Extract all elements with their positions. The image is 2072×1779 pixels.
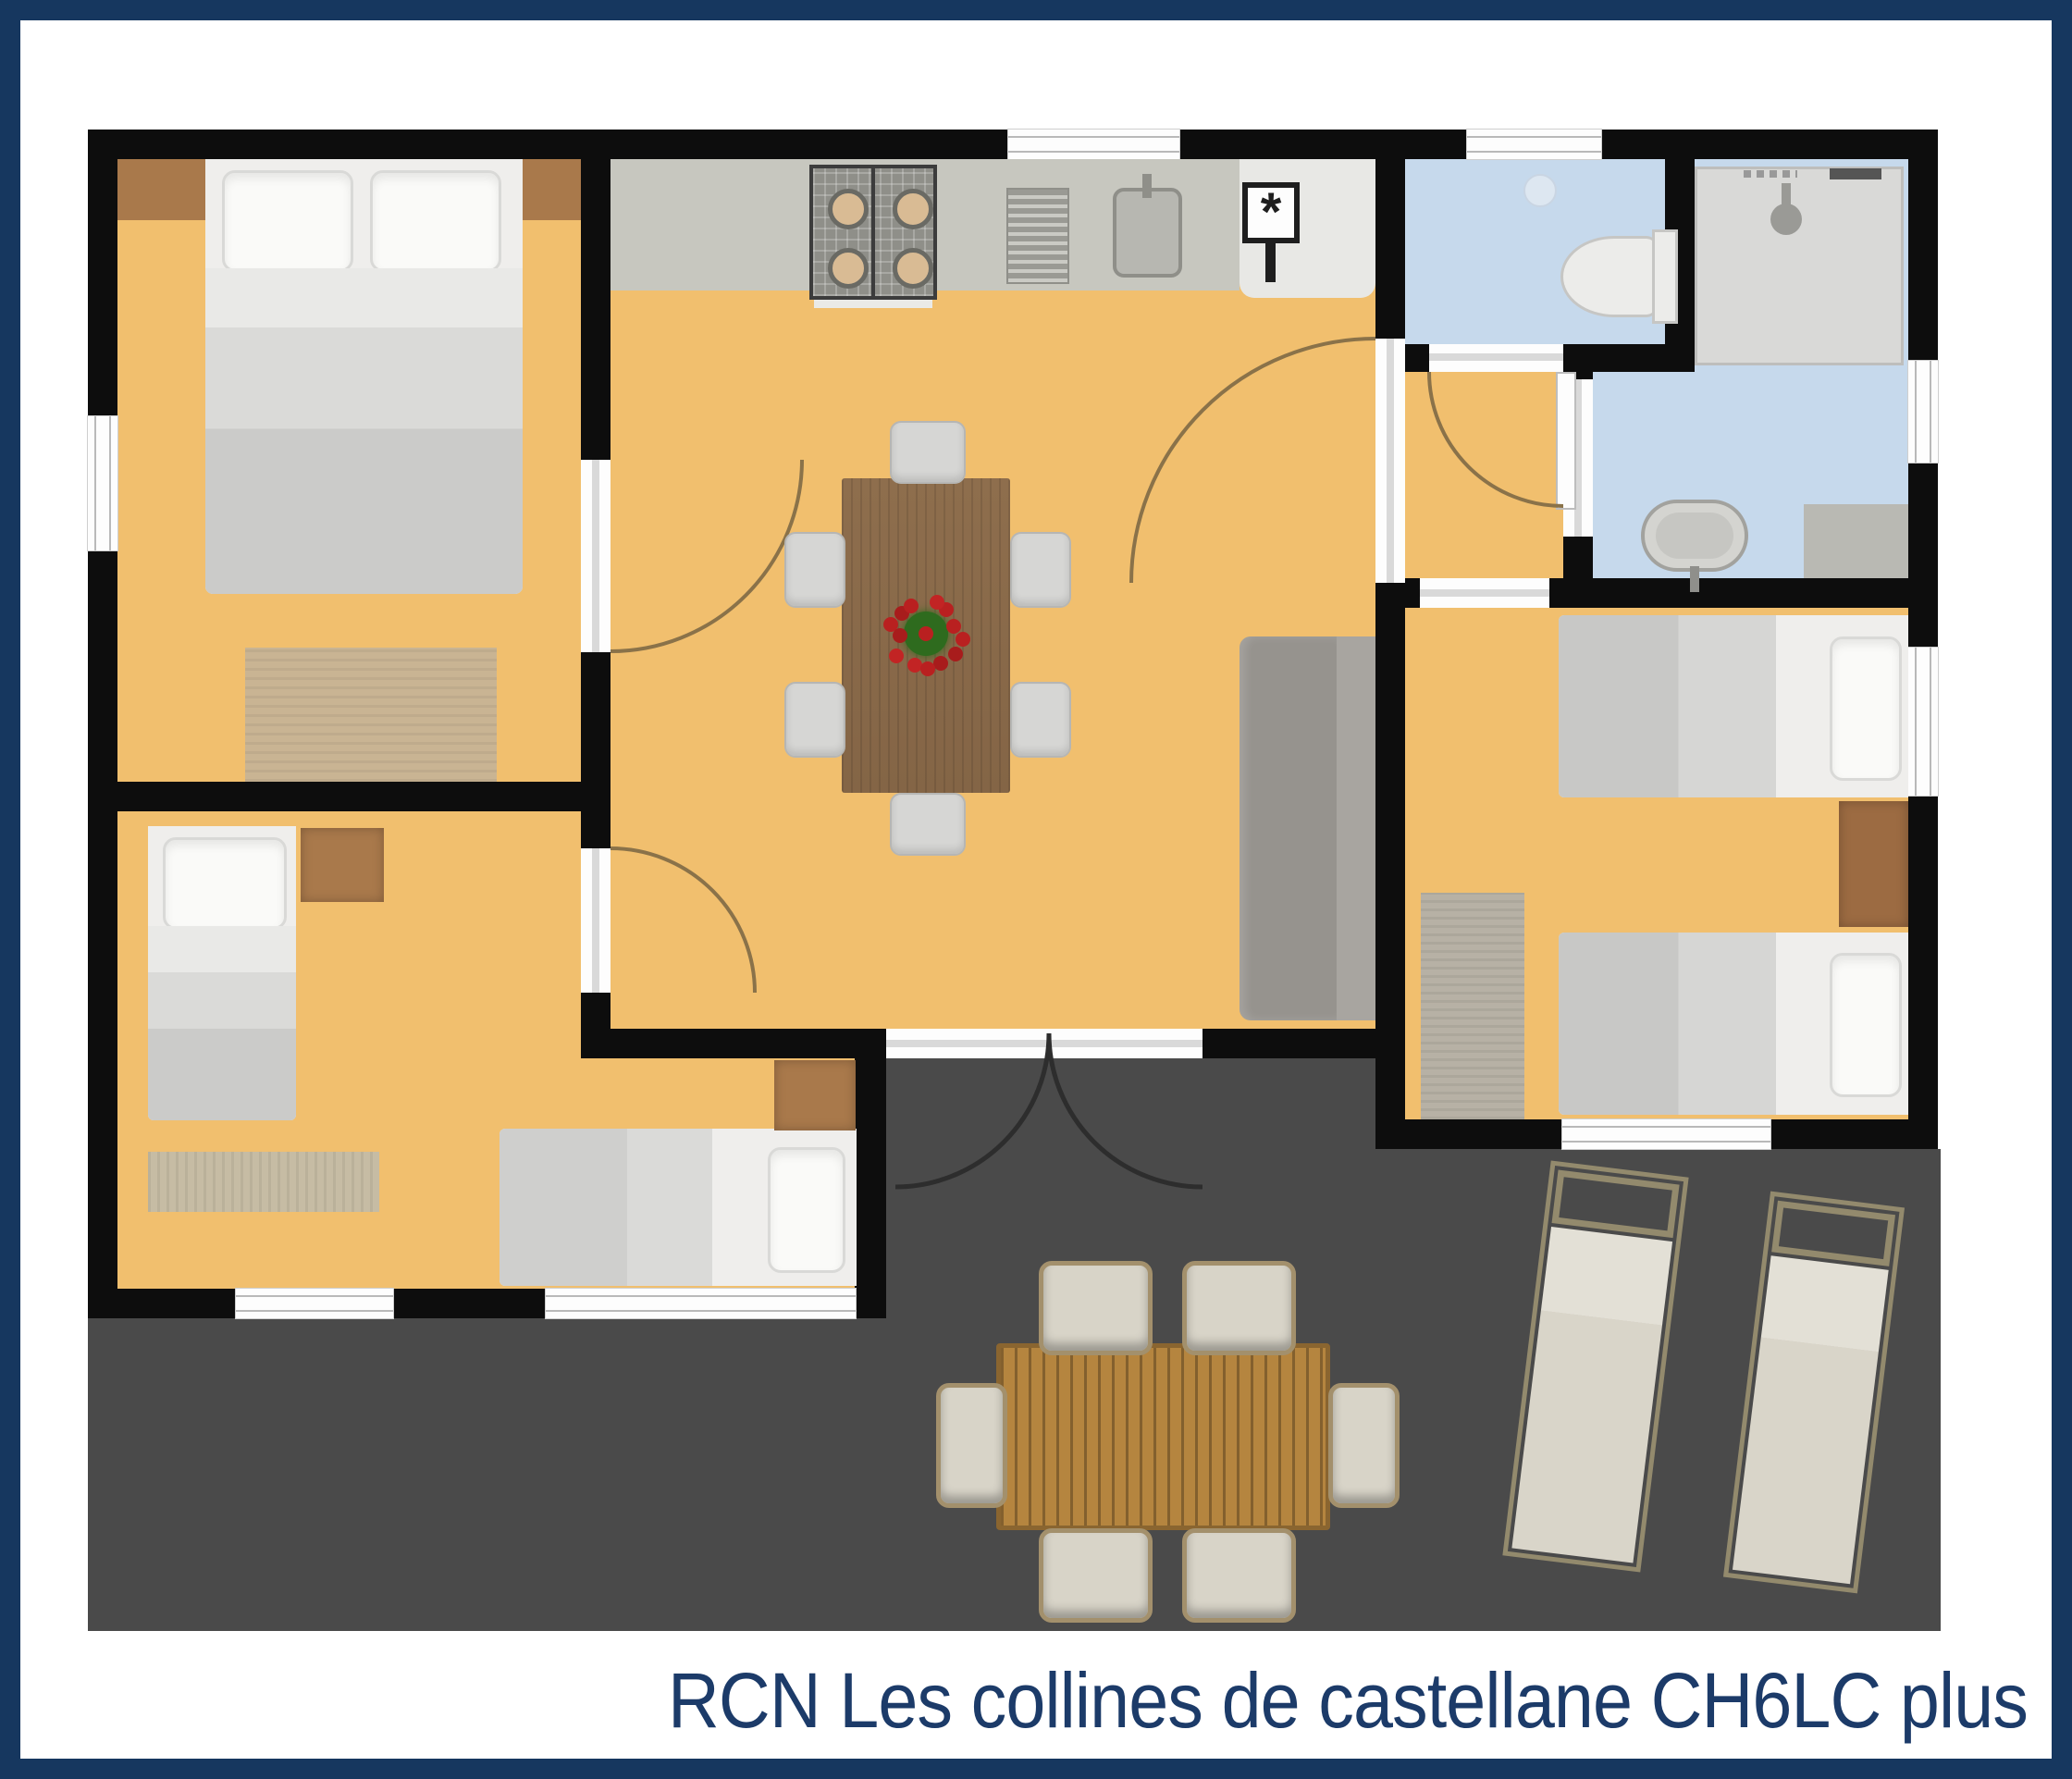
terrace-left <box>88 1318 886 1631</box>
nightstand <box>301 828 384 902</box>
rug-bedroom-top-left <box>245 648 497 782</box>
outdoor-chair <box>1182 1261 1296 1355</box>
wall-living-bottom-right <box>1202 1029 1375 1058</box>
burner-icon <box>828 248 869 289</box>
door-hallway <box>1375 339 1405 583</box>
floorplan-image: * <box>0 0 2072 1779</box>
single-bed-sheet-fold <box>148 926 296 972</box>
pillow <box>1830 636 1902 781</box>
wc-door-leaf <box>1556 372 1576 510</box>
dining-chair <box>890 421 966 484</box>
outdoor-chair <box>1182 1528 1296 1623</box>
outdoor-chair <box>1328 1383 1400 1508</box>
burner-icon <box>893 189 933 229</box>
window-kitchen <box>1008 130 1179 159</box>
outdoor-dining-table <box>996 1343 1330 1530</box>
outdoor-chair <box>1039 1528 1153 1623</box>
door-bedroom-top-left <box>581 460 610 652</box>
dining-chair <box>1010 682 1071 758</box>
shower-control-mark <box>1830 168 1881 179</box>
door-bedroom-bottom-left <box>581 848 610 993</box>
double-bed-sheet-fold <box>205 268 523 327</box>
plan-title: RCN Les collines de castellane CH6LC plu… <box>162 1649 2028 1752</box>
shower-head-icon <box>1770 204 1802 235</box>
washbasin-tap-icon <box>1690 566 1699 592</box>
single-bed-horizontal-blanket <box>499 1129 712 1286</box>
wall-left <box>88 130 117 1318</box>
burner-icon <box>893 248 933 289</box>
dining-chair <box>1010 532 1071 608</box>
sofa-backrest <box>1337 636 1375 1020</box>
wall-bedrooms-divider <box>88 782 610 811</box>
pillow <box>163 837 287 930</box>
floor-hallway <box>1405 372 1563 608</box>
window-bedroom-top-left <box>88 416 117 550</box>
pillow <box>222 170 353 272</box>
boiler-stem <box>1265 243 1276 282</box>
window-wc <box>1467 130 1601 159</box>
lounger-headrest-frame <box>1552 1169 1680 1238</box>
shower-neck-icon <box>1782 183 1791 207</box>
stove <box>809 165 937 300</box>
wall-living-right <box>1375 130 1405 1119</box>
dining-chair <box>890 793 966 856</box>
drainboard <box>1006 188 1069 284</box>
flower-centerpiece-blooms <box>919 626 933 641</box>
wall-extension-right <box>855 1029 886 1318</box>
lounger-headrest-frame <box>1771 1201 1895 1266</box>
bed-right-top-blanket <box>1559 615 1776 797</box>
window-bedroom-right-side <box>1908 648 1938 796</box>
entrance-french-doors-threshold <box>886 1029 1202 1058</box>
shower-tray <box>1695 167 1904 365</box>
washbasin-inner <box>1656 513 1733 559</box>
sofa-seat <box>1239 636 1337 1020</box>
washbasin-icon <box>1641 500 1748 572</box>
wall-living-bottom-left <box>581 1029 886 1058</box>
outdoor-chair <box>1039 1261 1153 1355</box>
nightstand <box>1839 801 1908 927</box>
toilet-tank-icon <box>1652 229 1678 324</box>
pillow <box>370 170 501 272</box>
rug-bedroom-right <box>1421 893 1524 1119</box>
sink <box>1113 188 1182 278</box>
nightstand <box>774 1060 856 1130</box>
bed-right-bottom-blanket <box>1559 933 1776 1115</box>
stove-front-strip <box>814 300 932 308</box>
dining-chair <box>784 682 845 758</box>
dining-chair <box>784 532 845 608</box>
door-wc <box>1429 344 1563 372</box>
outdoor-chair <box>936 1383 1007 1508</box>
sink-tap-icon <box>1142 174 1152 198</box>
door-bedroom-right <box>1420 578 1549 608</box>
double-bed-blanket <box>205 327 523 594</box>
shower-markings <box>1744 170 1797 178</box>
boiler-icon: * <box>1242 182 1300 243</box>
rug-bedroom-bottom-left <box>148 1152 379 1212</box>
pillow <box>768 1147 845 1273</box>
pillow <box>1830 953 1902 1097</box>
wc-ceiling-light-icon <box>1523 174 1557 207</box>
window-bedroom-bottom-left-b <box>546 1289 856 1318</box>
window-bedroom-right-bottom <box>1562 1119 1770 1149</box>
burner-icon <box>828 189 869 229</box>
window-bedroom-bottom-left-a <box>236 1289 393 1318</box>
bathroom-counter <box>1804 504 1908 578</box>
window-bathroom <box>1908 361 1938 463</box>
wall-right <box>1908 130 1938 1149</box>
stove-divider <box>871 168 875 296</box>
single-bed-blanket <box>148 972 296 1120</box>
